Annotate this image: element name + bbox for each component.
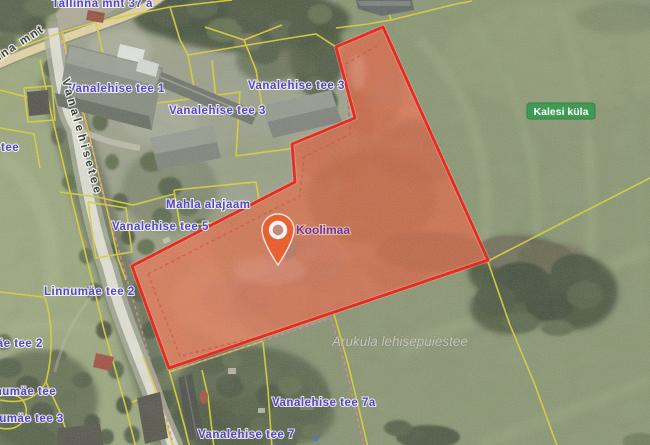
svg-text:Kalesi küla: Kalesi küla (534, 106, 589, 118)
svg-text:Mahla alajaam: Mahla alajaam (166, 199, 250, 211)
svg-text:Aruküla lehisepuiestee: Aruküla lehisepuiestee (331, 334, 468, 349)
svg-text:mäe tee 2: mäe tee 2 (0, 338, 43, 350)
svg-text:Vanalehise tee 7: Vanalehise tee 7 (198, 429, 295, 441)
svg-text:Vanalehise tee 1: Vanalehise tee 1 (68, 83, 165, 95)
svg-text:Vanalehise tee 3: Vanalehise tee 3 (169, 105, 266, 117)
svg-text:Linnumäe tee 3: Linnumäe tee 3 (0, 413, 64, 425)
svg-text:tee: tee (1, 142, 19, 154)
svg-text:Tallinna mnt 37 a: Tallinna mnt 37 a (52, 0, 153, 10)
svg-text:Linnumäe tee 2: Linnumäe tee 2 (44, 286, 135, 298)
svg-text:Vanalehise tee 3: Vanalehise tee 3 (248, 80, 345, 92)
svg-text:Koolimaa: Koolimaa (296, 223, 350, 237)
svg-text:Vanalehise tee 5: Vanalehise tee 5 (112, 221, 209, 233)
svg-text:Linnumäe tee: Linnumäe tee (0, 386, 56, 398)
svg-text:Vanalehise tee 7a: Vanalehise tee 7a (272, 397, 376, 409)
